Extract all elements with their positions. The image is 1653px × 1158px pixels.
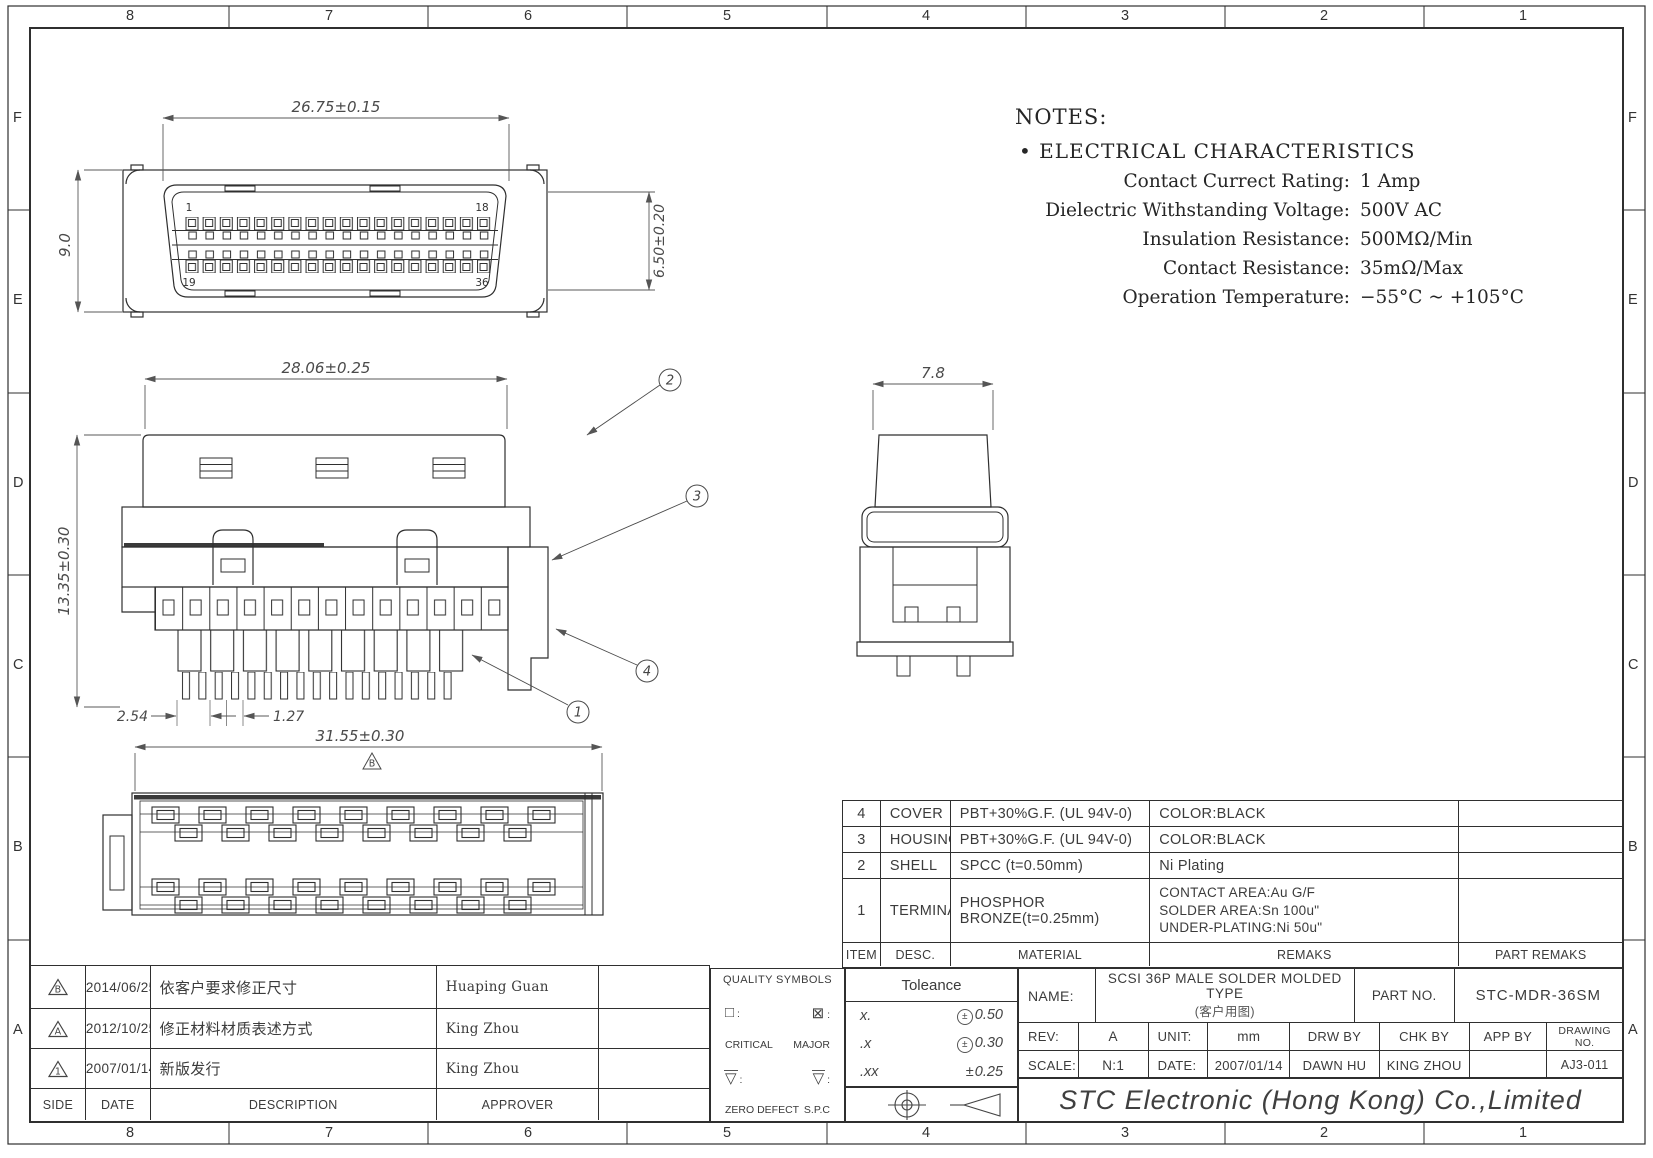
bom-row-4: 4 COVER PBT+30%G.F. (UL 94V-0) COLOR:BLA… bbox=[843, 801, 1622, 827]
scale-label: SCALE: bbox=[1019, 1051, 1079, 1079]
drawing-no-label: DRAWING NO. bbox=[1547, 1023, 1622, 1050]
zone-row-left-f: F bbox=[13, 110, 22, 126]
zone-row-right-b: B bbox=[1628, 839, 1638, 855]
circled-plus-minus-icon: ± bbox=[957, 1037, 973, 1053]
callout-3: 3 bbox=[693, 490, 701, 505]
dim-end-width: 7.8 bbox=[921, 364, 945, 382]
svg-text:1: 1 bbox=[55, 1066, 61, 1077]
pin-number-36: 36 bbox=[475, 277, 489, 289]
colon: : bbox=[739, 1074, 742, 1086]
chk-by-value: KING ZHOU bbox=[1380, 1051, 1470, 1079]
notes-title: NOTES: bbox=[1015, 105, 1560, 129]
tolerance-number: 0.25 bbox=[975, 1064, 1003, 1080]
bottom-view-dimensions: 31.55±0.30 B bbox=[135, 727, 602, 791]
bom-row-2: 2 SHELL SPCC (t=0.50mm) Ni Plating bbox=[843, 853, 1622, 879]
note-value: 1 Amp bbox=[1350, 171, 1420, 192]
app-by-value bbox=[1470, 1051, 1548, 1079]
plus-minus-sign: ± bbox=[966, 1064, 974, 1080]
note-item: Insulation Resistance:500MΩ/Min bbox=[1015, 229, 1560, 250]
svg-text:A: A bbox=[55, 1026, 62, 1037]
revision-triangle-icon: 1 bbox=[48, 1060, 68, 1078]
tolerance-row: x. ±0.50 bbox=[846, 1002, 1017, 1030]
note-item: Dielectric Withstanding Voltage:500V AC bbox=[1015, 200, 1560, 221]
bom-header-material: MATERIAL bbox=[951, 943, 1150, 966]
bom-header-remaks: REMAKS bbox=[1150, 943, 1459, 966]
tolerance-value: ±0.30 bbox=[957, 1035, 1003, 1053]
part-no-label: PART NO. bbox=[1355, 969, 1455, 1022]
bom-material: SPCC (t=0.50mm) bbox=[951, 853, 1151, 878]
critical-symbol-icon: □ : bbox=[725, 1004, 740, 1022]
unit-label: UNIT: bbox=[1149, 1023, 1209, 1050]
name-value: SCSI 36P MALE SOLDER MOLDED TYPE (客户用图) bbox=[1096, 969, 1355, 1022]
bom-row-3: 3 HOUSING PBT+30%G.F. (UL 94V-0) COLOR:B… bbox=[843, 827, 1622, 853]
revision-date: 2012/10/25 bbox=[86, 1009, 151, 1048]
third-angle-projection-icon bbox=[852, 1090, 1012, 1120]
revision-row: 1 2007/01/14 新版发行 King Zhou bbox=[31, 1049, 709, 1089]
revision-triangle-icon: B bbox=[48, 978, 68, 996]
revision-approver: Huaping Guan bbox=[437, 966, 600, 1008]
callout-2: 2 bbox=[666, 374, 674, 389]
bom-header-item: ITEM bbox=[843, 943, 881, 966]
bom-part-remaks bbox=[1459, 879, 1622, 942]
side-view-drawing bbox=[122, 435, 548, 700]
zone-row-right-d: D bbox=[1628, 475, 1638, 491]
revision-header-side: SIDE bbox=[31, 1089, 86, 1120]
bom-row-1: 1 TERMINAL PHOSPHOR BRONZE(t=0.25mm) CON… bbox=[843, 879, 1622, 943]
zone-row-right-a: A bbox=[1628, 1022, 1638, 1038]
revision-triangle-icon: A bbox=[48, 1020, 68, 1038]
zone-col-bot-5: 5 bbox=[723, 1125, 731, 1141]
revision-extra-cell bbox=[599, 1049, 709, 1088]
name-line1: SCSI 36P MALE SOLDER MOLDED TYPE bbox=[1096, 971, 1354, 1001]
revision-approver: King Zhou bbox=[437, 1049, 600, 1088]
major-symbol-icon: ⊠ : bbox=[812, 1004, 830, 1022]
zone-col-top-1: 1 bbox=[1519, 8, 1527, 24]
quality-title: QUALITY SYMBOLS bbox=[719, 974, 836, 986]
zone-row-right-e: E bbox=[1628, 292, 1638, 308]
revision-mark-cell: A bbox=[31, 1009, 86, 1048]
major-label: MAJOR bbox=[793, 1039, 830, 1051]
zone-row-left-c: C bbox=[13, 657, 23, 673]
note-label: Dielectric Withstanding Voltage: bbox=[1015, 200, 1350, 221]
bom-remaks-line: SOLDER AREA:Sn 100u" bbox=[1159, 902, 1319, 920]
revision-triangle-icon: B bbox=[369, 759, 376, 770]
colon: : bbox=[827, 1009, 830, 1021]
zone-col-bot-4: 4 bbox=[922, 1125, 930, 1141]
pin-number-19: 19 bbox=[182, 277, 195, 289]
tolerance-box: Toleance x. ±0.50 .x ±0.30 .xx ±0.25 bbox=[845, 968, 1018, 1087]
dim-front-height: 9.0 bbox=[56, 233, 74, 257]
zone-col-top-5: 5 bbox=[723, 8, 731, 24]
bom-item: 1 bbox=[843, 879, 881, 942]
bom-material: PHOSPHOR BRONZE(t=0.25mm) bbox=[951, 879, 1151, 942]
scale-value: N:1 bbox=[1079, 1051, 1149, 1079]
dim-side-width: 28.06±0.25 bbox=[282, 359, 371, 377]
note-value: 500V AC bbox=[1350, 200, 1442, 221]
drw-by-value: DAWN HU bbox=[1290, 1051, 1380, 1079]
part-no-value: STC-MDR-36SM bbox=[1455, 969, 1622, 1022]
dim-front-width: 26.75±0.15 bbox=[292, 98, 381, 116]
zone-col-top-4: 4 bbox=[922, 8, 930, 24]
bom-remaks-line: UNDER-PLATING:Ni 50u" bbox=[1159, 919, 1322, 937]
bullet-icon: • bbox=[1019, 139, 1032, 163]
bom-part-remaks bbox=[1459, 827, 1622, 852]
finish-symbol-icon: ▽ : bbox=[813, 1069, 830, 1087]
app-by-label: APP BY bbox=[1470, 1023, 1548, 1050]
zone-col-top-7: 7 bbox=[325, 8, 333, 24]
zone-col-bot-8: 8 bbox=[126, 1125, 134, 1141]
date-label: DATE: bbox=[1149, 1051, 1209, 1079]
note-label: Contact Resistance: bbox=[1015, 258, 1350, 279]
bom-desc: HOUSING bbox=[881, 827, 951, 852]
zone-col-bot-6: 6 bbox=[524, 1125, 532, 1141]
bom-header-part-remaks: PART REMAKS bbox=[1459, 943, 1622, 966]
notes-heading-text: ELECTRICAL CHARACTERISTICS bbox=[1039, 139, 1415, 163]
title-labels-row: REV: A UNIT: mm DRW BY CHK BY APP BY DRA… bbox=[1019, 1023, 1622, 1051]
date-value: 2007/01/14 bbox=[1208, 1051, 1290, 1079]
end-view-drawing bbox=[857, 435, 1013, 676]
projection-symbol-box bbox=[845, 1087, 1018, 1122]
zone-col-top-6: 6 bbox=[524, 8, 532, 24]
name-label: NAME: bbox=[1019, 969, 1096, 1022]
revision-date: 2014/06/25 bbox=[86, 966, 151, 1008]
revision-description: 依客户要求修正尺寸 bbox=[151, 966, 437, 1008]
bom-remaks-line: CONTACT AREA:Au G/F bbox=[1159, 884, 1315, 902]
revision-table: B 2014/06/25 依客户要求修正尺寸 Huaping Guan A 20… bbox=[30, 965, 710, 1122]
tolerance-number: 0.50 bbox=[975, 1007, 1003, 1023]
zone-col-top-2: 2 bbox=[1320, 8, 1328, 24]
revision-description: 新版发行 bbox=[151, 1049, 437, 1088]
dim-side-pitch: 2.54 bbox=[117, 709, 148, 725]
bom-item: 3 bbox=[843, 827, 881, 852]
end-view-dimensions: 7.8 bbox=[873, 364, 993, 430]
title-block: NAME: SCSI 36P MALE SOLDER MOLDED TYPE (… bbox=[1018, 968, 1623, 1078]
rev-label: REV: bbox=[1019, 1023, 1079, 1050]
colon: : bbox=[827, 1074, 830, 1086]
bom-desc: SHELL bbox=[881, 853, 951, 878]
zone-col-top-3: 3 bbox=[1121, 8, 1129, 24]
zone-col-bot-1: 1 bbox=[1519, 1125, 1527, 1141]
note-value: 500MΩ/Min bbox=[1350, 229, 1473, 250]
note-item: Contact Resistance:35mΩ/Max bbox=[1015, 258, 1560, 279]
title-name-row: NAME: SCSI 36P MALE SOLDER MOLDED TYPE (… bbox=[1019, 969, 1622, 1023]
bom-remaks: COLOR:BLACK bbox=[1150, 827, 1459, 852]
bom-table: 4 COVER PBT+30%G.F. (UL 94V-0) COLOR:BLA… bbox=[842, 800, 1623, 968]
zone-row-left-d: D bbox=[13, 475, 23, 491]
revision-date: 2007/01/14 bbox=[86, 1049, 151, 1088]
tolerance-places: .xx bbox=[860, 1064, 879, 1080]
revision-approver: King Zhou bbox=[437, 1009, 600, 1048]
unit-value: mm bbox=[1208, 1023, 1290, 1050]
drawing-sheet: 1 18 19 36 26.75±0.15 9.0 6.50±0.20 28.0… bbox=[0, 0, 1653, 1158]
bom-part-remaks bbox=[1459, 801, 1622, 826]
zone-col-bot-3: 3 bbox=[1121, 1125, 1129, 1141]
zone-row-right-c: C bbox=[1628, 657, 1638, 673]
note-value: −55°C ~ +105°C bbox=[1350, 287, 1524, 308]
revision-header-description: DESCRIPTION bbox=[151, 1089, 437, 1120]
revision-row: A 2012/10/25 修正材料材质表述方式 King Zhou bbox=[31, 1009, 709, 1049]
bom-header-row: ITEM DESC. MATERIAL REMAKS PART REMAKS bbox=[843, 943, 1622, 966]
bom-remaks: CONTACT AREA:Au G/F SOLDER AREA:Sn 100u"… bbox=[1150, 879, 1459, 942]
revision-row: B 2014/06/25 依客户要求修正尺寸 Huaping Guan bbox=[31, 966, 709, 1009]
dim-side-half-pitch: 1.27 bbox=[273, 709, 304, 725]
dim-bottom-width: 31.55±0.30 bbox=[316, 727, 405, 745]
zone-row-left-b: B bbox=[13, 839, 23, 855]
zone-row-right-f: F bbox=[1628, 110, 1637, 126]
chk-by-label: CHK BY bbox=[1380, 1023, 1470, 1050]
triangle-finish-icon: ▽ bbox=[813, 1069, 825, 1087]
tolerance-places: .x bbox=[860, 1036, 871, 1052]
zone-col-top-8: 8 bbox=[126, 8, 134, 24]
note-label: Operation Temperature: bbox=[1015, 287, 1350, 308]
tolerance-row: .x ±0.30 bbox=[846, 1030, 1017, 1058]
tolerance-title: Toleance bbox=[846, 969, 1017, 1002]
square-icon: □ bbox=[725, 1004, 734, 1021]
revision-header-row: SIDE DATE DESCRIPTION APPROVER bbox=[31, 1089, 709, 1120]
tolerance-value: ±0.25 bbox=[966, 1064, 1003, 1080]
callout-1: 1 bbox=[574, 706, 582, 721]
front-view-dimensions: 26.75±0.15 9.0 6.50±0.20 bbox=[56, 98, 668, 312]
bom-material: PBT+30%G.F. (UL 94V-0) bbox=[951, 801, 1151, 826]
bom-item: 4 bbox=[843, 801, 881, 826]
zero-defect-label: ZERO DEFECT bbox=[725, 1104, 799, 1116]
revision-header-approver: APPROVER bbox=[437, 1089, 600, 1120]
revision-mark-cell: 1 bbox=[31, 1049, 86, 1088]
triangle-finish-icon: ▽ bbox=[725, 1069, 737, 1087]
revision-extra-cell bbox=[599, 966, 709, 1008]
front-view-drawing: 1 18 19 36 bbox=[123, 165, 547, 317]
note-label: Insulation Resistance: bbox=[1015, 229, 1350, 250]
crossed-square-icon: ⊠ bbox=[812, 1005, 825, 1022]
zone-row-left-a: A bbox=[13, 1022, 23, 1038]
tolerance-number: 0.30 bbox=[975, 1035, 1003, 1051]
tolerance-value: ±0.50 bbox=[957, 1007, 1003, 1025]
spc-label: S.P.C bbox=[804, 1104, 830, 1116]
bom-desc: COVER bbox=[881, 801, 951, 826]
zone-col-bot-2: 2 bbox=[1320, 1125, 1328, 1141]
title-values-row: SCALE: N:1 DATE: 2007/01/14 DAWN HU KING… bbox=[1019, 1051, 1622, 1079]
bom-remaks: Ni Plating bbox=[1150, 853, 1459, 878]
rev-value: A bbox=[1079, 1023, 1149, 1050]
note-item: Operation Temperature:−55°C ~ +105°C bbox=[1015, 287, 1560, 308]
company-name: STC Electronic (Hong Kong) Co.,Limited bbox=[1018, 1078, 1623, 1122]
bottom-view-drawing bbox=[103, 793, 603, 915]
callout-4: 4 bbox=[643, 665, 651, 680]
pin-number-18: 18 bbox=[475, 202, 488, 214]
dim-side-height: 13.35±0.30 bbox=[55, 527, 73, 616]
note-value: 35mΩ/Max bbox=[1350, 258, 1463, 279]
pin-number-1: 1 bbox=[186, 202, 193, 214]
bom-part-remaks bbox=[1459, 853, 1622, 878]
revision-description: 修正材料材质表述方式 bbox=[151, 1009, 437, 1048]
critical-label: CRITICAL bbox=[725, 1039, 773, 1051]
bom-remaks: COLOR:BLACK bbox=[1150, 801, 1459, 826]
quality-symbols-box: QUALITY SYMBOLS □ : ⊠ : CRITICAL MAJOR ▽… bbox=[710, 968, 845, 1122]
finish-symbol-icon: ▽ : bbox=[725, 1069, 742, 1087]
tolerance-row: .xx ±0.25 bbox=[846, 1058, 1017, 1086]
revision-extra-cell bbox=[599, 1009, 709, 1048]
bom-header-desc: DESC. bbox=[881, 943, 951, 966]
tolerance-places: x. bbox=[860, 1008, 871, 1024]
note-item: Contact Currect Rating:1 Amp bbox=[1015, 171, 1560, 192]
drw-by-label: DRW BY bbox=[1290, 1023, 1380, 1050]
svg-text:B: B bbox=[54, 985, 61, 996]
dim-front-opening: 6.50±0.20 bbox=[652, 204, 668, 278]
notes-block: NOTES: • ELECTRICAL CHARACTERISTICS Cont… bbox=[1015, 105, 1560, 308]
bom-desc: TERMINAL bbox=[881, 879, 951, 942]
zone-row-left-e: E bbox=[13, 292, 23, 308]
revision-header-date: DATE bbox=[86, 1089, 151, 1120]
notes-heading: • ELECTRICAL CHARACTERISTICS bbox=[1019, 139, 1560, 163]
circled-plus-minus-icon: ± bbox=[957, 1009, 973, 1025]
name-line2: (客户用图) bbox=[1195, 1001, 1255, 1020]
note-label: Contact Currect Rating: bbox=[1015, 171, 1350, 192]
revision-extra-cell bbox=[599, 1089, 709, 1120]
zone-col-bot-7: 7 bbox=[325, 1125, 333, 1141]
bom-item: 2 bbox=[843, 853, 881, 878]
bom-material: PBT+30%G.F. (UL 94V-0) bbox=[951, 827, 1151, 852]
revision-mark-cell: B bbox=[31, 966, 86, 1008]
colon: : bbox=[737, 1008, 740, 1020]
drawing-no-value: AJ3-011 bbox=[1547, 1051, 1622, 1079]
